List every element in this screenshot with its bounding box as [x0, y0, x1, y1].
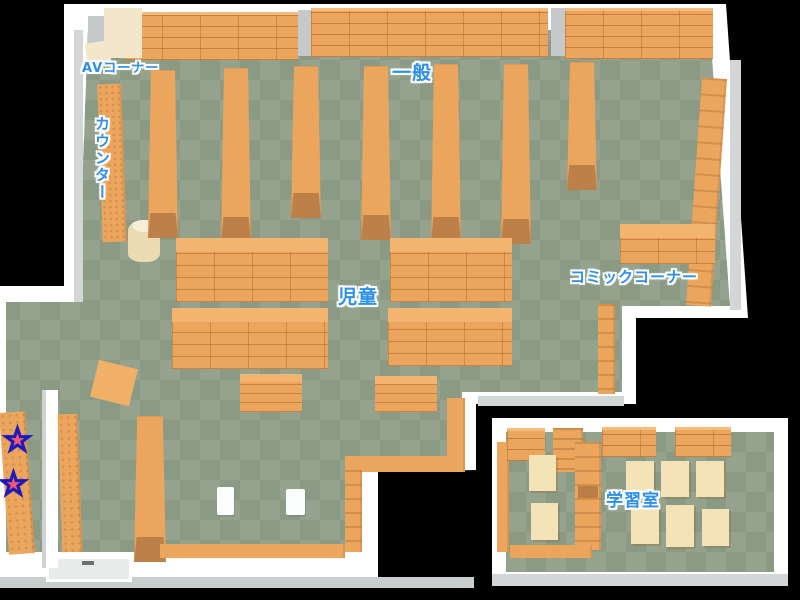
study-table: [666, 505, 694, 547]
top-shelf-row-2: [311, 8, 548, 57]
children-shelf: [388, 308, 512, 366]
children-shelf: [172, 308, 328, 369]
bookshelf-column: [501, 64, 531, 244]
study-bottom-shelf: [510, 545, 592, 558]
study-shelf: [675, 427, 731, 457]
label-av-corner: AVコーナー: [82, 57, 159, 76]
floor-stand: [286, 489, 305, 515]
bookshelf-column: [221, 68, 251, 242]
star-icon: ★: [0, 470, 27, 500]
pillar: [551, 8, 565, 56]
study-table: [696, 461, 724, 497]
children-shelf: [390, 238, 512, 302]
library-floor-map: ★ ★ AVコーナー 一般 カウンター 児童 コミックコーナー 学習室: [0, 0, 800, 600]
study-table: [531, 503, 558, 540]
interior-wall: [42, 390, 58, 568]
corner-shelf: [447, 398, 465, 460]
entrance-door: [46, 556, 132, 582]
bookshelf-column: [567, 62, 597, 190]
bookshelf-column: [431, 64, 461, 242]
study-table: [529, 455, 556, 491]
bottom-wall-shelf: [160, 544, 345, 558]
door-handle-icon: [82, 561, 94, 565]
label-children: 児童: [338, 282, 378, 309]
label-study-room: 学習室: [606, 486, 660, 511]
label-counter: カウンター: [92, 116, 113, 201]
comic-shelf: [620, 224, 715, 264]
bookshelf-column: [134, 416, 166, 562]
top-shelf-row-3: [565, 8, 713, 59]
study-table: [661, 461, 689, 497]
right-wall-shade: [730, 60, 741, 310]
floor-stand: [217, 487, 234, 515]
top-shelf-row-1: [124, 12, 298, 60]
pillar: [298, 10, 311, 56]
study-room-wall-shade: [492, 574, 788, 586]
low-bench: [240, 374, 302, 412]
study-table: [702, 509, 729, 546]
bookshelf-column: [361, 66, 391, 240]
corner-shelf: [345, 456, 465, 472]
bookshelf-column: [291, 66, 321, 218]
step-wall-shade: [478, 396, 624, 406]
label-comic-corner: コミックコーナー: [570, 266, 698, 287]
star-icon: ★: [4, 426, 31, 456]
study-divider-notch: [578, 486, 598, 498]
low-bench: [375, 376, 437, 412]
study-shelf: [602, 427, 656, 457]
children-shelf: [176, 238, 328, 302]
bookshelf-column: [148, 70, 178, 238]
corner-shelf: [345, 470, 362, 552]
label-general: 一般: [392, 58, 432, 85]
comic-wall-shelf: [598, 304, 615, 394]
